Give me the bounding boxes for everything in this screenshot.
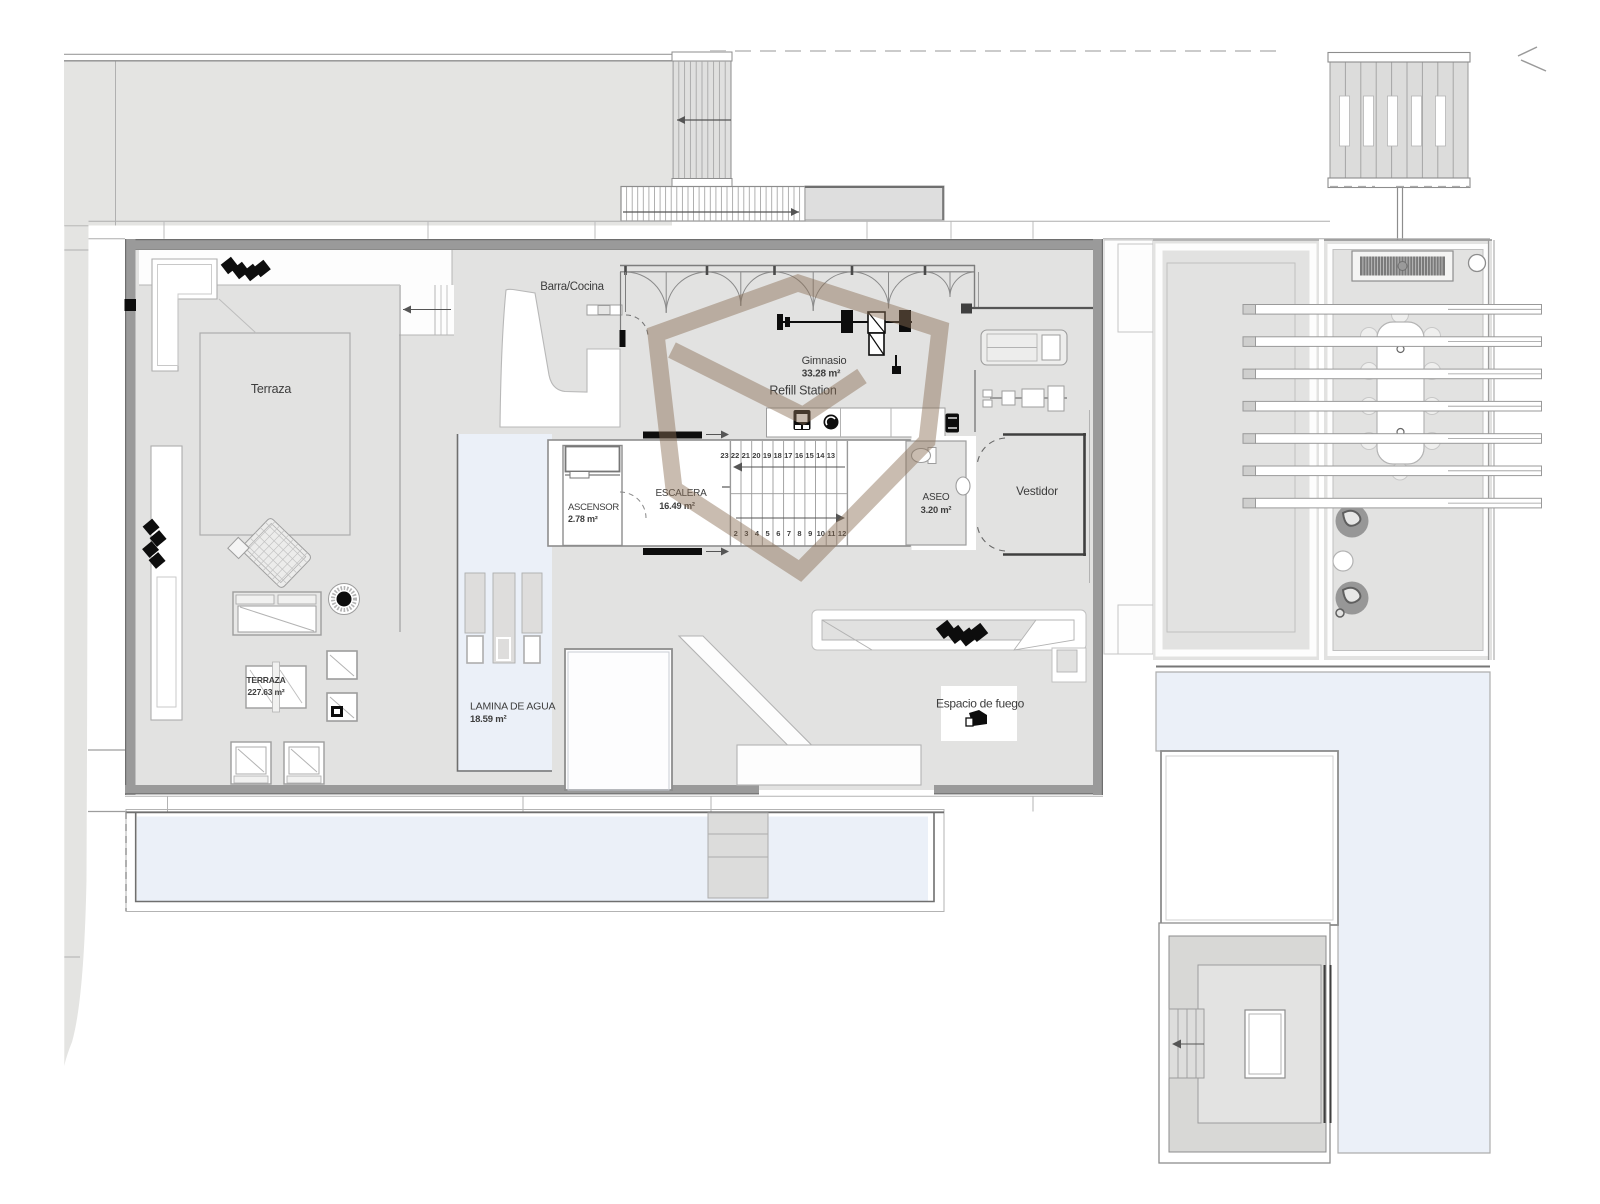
- svg-text:ASEO: ASEO: [923, 492, 950, 503]
- svg-text:Barra/Cocina: Barra/Cocina: [540, 281, 604, 293]
- svg-text:18: 18: [774, 451, 782, 460]
- svg-text:14: 14: [816, 451, 825, 460]
- svg-text:19: 19: [763, 451, 771, 460]
- svg-text:17: 17: [784, 451, 792, 460]
- svg-text:23: 23: [720, 451, 728, 460]
- svg-text:18.59 m²: 18.59 m²: [470, 714, 506, 725]
- svg-text:6: 6: [776, 529, 780, 538]
- svg-text:8: 8: [797, 529, 801, 538]
- svg-text:22: 22: [731, 451, 739, 460]
- svg-text:Terraza: Terraza: [251, 382, 292, 396]
- svg-text:Gimnasio: Gimnasio: [802, 355, 847, 367]
- svg-text:20: 20: [752, 451, 760, 460]
- svg-text:LAMINA DE AGUA: LAMINA DE AGUA: [470, 701, 556, 713]
- svg-text:227.63 m²: 227.63 m²: [248, 687, 285, 697]
- svg-text:5: 5: [766, 529, 770, 538]
- svg-text:15: 15: [805, 451, 813, 460]
- svg-text:Espacio de fuego: Espacio de fuego: [936, 697, 1025, 711]
- svg-text:ASCENSOR: ASCENSOR: [568, 502, 619, 513]
- svg-text:2.78 m²: 2.78 m²: [568, 514, 598, 524]
- svg-text:3.20 m²: 3.20 m²: [921, 505, 952, 515]
- svg-text:16: 16: [795, 451, 803, 460]
- svg-text:33.28 m²: 33.28 m²: [802, 369, 841, 380]
- svg-text:TERRAZA: TERRAZA: [246, 675, 285, 685]
- svg-text:21: 21: [742, 451, 750, 460]
- svg-text:9: 9: [808, 529, 812, 538]
- svg-text:7: 7: [787, 529, 791, 538]
- svg-text:13: 13: [827, 451, 835, 460]
- svg-text:Vestidor: Vestidor: [1016, 484, 1058, 498]
